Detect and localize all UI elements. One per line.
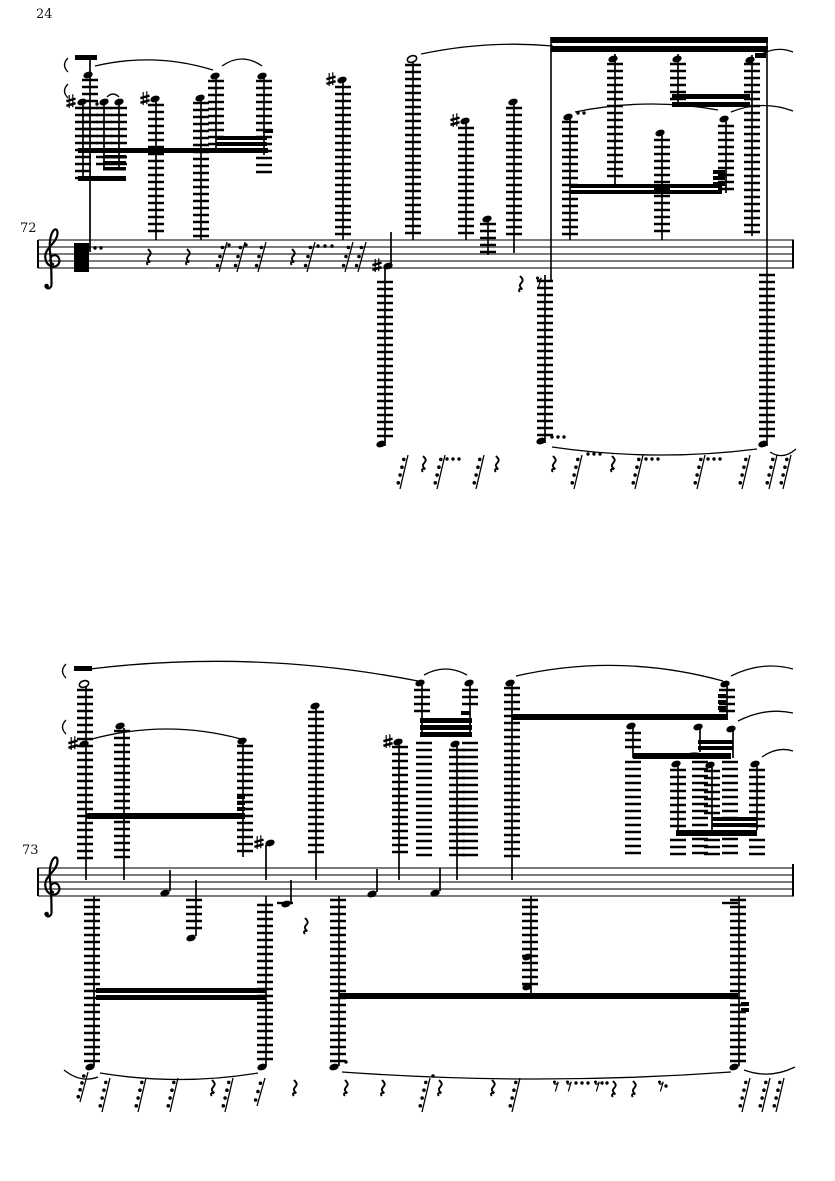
beam: [420, 732, 472, 737]
ledger-column: [186, 900, 202, 928]
beam: [570, 184, 722, 188]
notehead: [718, 114, 729, 123]
breath-arc: [65, 58, 69, 72]
augmentation-dot: [550, 435, 553, 438]
augmentation-dot: [598, 452, 601, 455]
ledger-column: [257, 905, 273, 1059]
notehead: [149, 94, 160, 103]
notehead: [328, 1062, 339, 1071]
augmentation-dot: [586, 1081, 589, 1084]
notehead: [185, 933, 196, 942]
eighth-rest: [553, 1081, 558, 1092]
beam: [96, 995, 266, 1000]
notehead: [481, 214, 492, 223]
augmentation-dot: [644, 457, 647, 460]
notehead: [256, 71, 267, 80]
ledger-column: [522, 900, 538, 984]
slur: [762, 749, 793, 757]
notehead: [671, 54, 682, 63]
notehead: [98, 97, 109, 106]
notehead: [749, 759, 760, 768]
notehead: [336, 75, 347, 84]
slur: [770, 449, 796, 456]
slur: [95, 60, 213, 70]
multi-flag-rest: [472, 455, 484, 489]
slur: [731, 666, 793, 676]
score-page: 24 72 73: [0, 0, 835, 1181]
multi-flag-rest: [508, 1078, 520, 1112]
augmentation-dot: [576, 111, 579, 114]
beam: [461, 711, 470, 715]
augmentation-dot: [580, 1081, 583, 1084]
multi-flag-rest: [738, 1078, 750, 1112]
notehead: [459, 116, 470, 125]
quarter-rest: [147, 249, 151, 265]
slur: [64, 1070, 98, 1079]
measure-number-72: 72: [20, 222, 37, 235]
augmentation-dot: [344, 1060, 347, 1063]
breath-arc: [63, 664, 67, 678]
beam: [551, 37, 768, 43]
slur: [342, 1072, 731, 1079]
beam: [713, 176, 725, 180]
quarter-rest: [186, 249, 190, 265]
sharp-accidental: [66, 94, 75, 108]
multi-flag-rest: [765, 455, 777, 489]
slur: [744, 1067, 795, 1074]
slur: [424, 669, 467, 675]
notehead-open: [78, 679, 89, 688]
notehead: [280, 899, 291, 908]
page-number: 24: [36, 8, 53, 21]
beam: [86, 813, 245, 819]
notehead: [113, 97, 124, 106]
treble-clef-icon: [44, 229, 59, 288]
sharp-accidental: [326, 72, 335, 86]
beam: [420, 725, 472, 730]
notehead: [654, 128, 665, 137]
notehead: [625, 721, 636, 730]
notehead: [692, 722, 703, 731]
slur: [100, 1073, 258, 1080]
quarter-rest: [422, 456, 426, 472]
multi-flag-rest: [758, 1078, 770, 1112]
augmentation-dot: [592, 452, 595, 455]
ledger-column: [416, 743, 432, 855]
beam: [78, 176, 126, 181]
multi-flag-rest: [221, 1078, 233, 1112]
notehead: [507, 97, 518, 106]
augmentation-dot: [330, 244, 333, 247]
multi-flag-rest: [433, 455, 445, 489]
beam: [755, 53, 766, 58]
slur: [107, 94, 119, 97]
beam: [216, 136, 267, 140]
augmentation-dot: [99, 246, 102, 249]
sharp-accidental: [140, 91, 149, 105]
quarter-rest: [211, 1080, 215, 1096]
beam: [672, 102, 750, 107]
beam: [698, 740, 733, 744]
sharp-accidental: [254, 835, 263, 849]
notehead: [414, 678, 425, 687]
augmentation-dot: [664, 1084, 667, 1087]
ledger-column: [84, 900, 100, 1061]
notehead: [504, 678, 515, 687]
ledger-column: [625, 762, 641, 853]
slur: [222, 59, 262, 66]
ledger-column: [77, 690, 93, 858]
augmentation-dot: [244, 243, 247, 246]
beam: [718, 700, 726, 704]
multi-flag-rest: [254, 1078, 265, 1106]
ledger-column: [114, 731, 130, 857]
beam: [741, 1008, 749, 1012]
quarter-rest: [519, 276, 523, 292]
quarter-rest: [304, 918, 308, 934]
score-canvas: [0, 0, 835, 1181]
augmentation-dot: [706, 457, 709, 460]
slur: [738, 711, 793, 721]
multi-flag-rest: [570, 455, 582, 489]
augmentation-dot: [316, 244, 319, 247]
beam: [718, 694, 726, 698]
beam: [676, 830, 757, 836]
beam: [551, 46, 768, 52]
augmentation-dot: [582, 111, 585, 114]
ledger-column: [730, 900, 746, 1061]
quarter-rest: [495, 456, 499, 472]
ledger-column: [692, 755, 708, 853]
eighth-rest: [658, 1081, 663, 1092]
beam: [712, 823, 757, 827]
slur: [421, 44, 553, 54]
augmentation-dot: [600, 1081, 603, 1084]
augmentation-dot: [93, 246, 96, 249]
quarter-rest: [632, 1081, 636, 1097]
multi-flag-rest: [772, 1078, 784, 1112]
eighth-rest: [566, 1081, 571, 1092]
multi-flag-rest: [779, 455, 791, 489]
augmentation-dot: [556, 435, 559, 438]
quarter-rest: [438, 1080, 442, 1096]
slur: [552, 447, 757, 455]
multi-flag-rest: [418, 1078, 430, 1112]
augmentation-dot: [656, 457, 659, 460]
ledger-column: [722, 762, 738, 853]
beam: [713, 170, 725, 174]
notehead: [562, 112, 573, 121]
beam: [718, 706, 726, 710]
multi-flag-rest: [631, 455, 643, 489]
quarter-rest: [293, 1080, 297, 1096]
beam: [74, 666, 92, 671]
measure-number-73: 73: [22, 844, 39, 857]
notehead: [607, 54, 618, 63]
beam: [103, 155, 126, 159]
quarter-rest: [291, 249, 295, 265]
system-m72: [38, 37, 796, 489]
augmentation-dot: [457, 457, 460, 460]
augmentation-dot: [605, 1081, 608, 1084]
notehead: [670, 759, 681, 768]
multi-flag-rest: [76, 1072, 88, 1102]
notehead: [82, 70, 93, 79]
beam: [698, 746, 733, 750]
quarter-rest: [612, 1081, 616, 1097]
notehead: [728, 1062, 739, 1071]
multi-flag-rest: [693, 455, 705, 489]
quarter-rest: [344, 1080, 348, 1096]
treble-clef-icon: [44, 857, 59, 916]
notehead-open: [406, 54, 417, 63]
beam: [741, 1002, 749, 1006]
augmentation-dot: [95, 102, 98, 105]
multi-flag-rest: [738, 455, 750, 489]
eighth-rest: [594, 1081, 599, 1092]
sharp-accidental: [68, 736, 77, 750]
beam: [712, 817, 757, 821]
augmentation-dot: [445, 457, 448, 460]
ledger-column: [670, 840, 686, 854]
multi-flag-rest: [98, 1078, 110, 1112]
augmentation-dot: [562, 435, 565, 438]
augmentation-dot: [451, 457, 454, 460]
notehead: [382, 261, 393, 270]
quarter-rest: [611, 456, 615, 472]
sharp-accidental: [383, 734, 392, 748]
beam: [96, 988, 266, 993]
slur: [516, 665, 723, 681]
ledger-column: [392, 747, 408, 852]
quarter-rest: [491, 1080, 495, 1096]
beam: [339, 993, 738, 999]
augmentation-dot: [323, 244, 326, 247]
breath-arc: [63, 720, 67, 734]
augmentation-dot: [574, 1081, 577, 1084]
augmentation-dot: [431, 1074, 434, 1077]
beam: [103, 161, 126, 165]
beam: [570, 190, 722, 194]
ledger-column: [749, 840, 765, 854]
augmentation-dot: [718, 457, 721, 460]
multi-flag-rest: [396, 455, 408, 489]
slur: [90, 661, 418, 681]
augmentation-dot: [650, 457, 653, 460]
notehead: [209, 71, 220, 80]
ledger-column: [330, 900, 346, 1061]
notehead: [463, 678, 474, 687]
augmentation-dot: [712, 457, 715, 460]
beam: [75, 55, 97, 60]
notehead: [366, 889, 377, 898]
notehead: [725, 724, 736, 733]
multi-flag-rest: [166, 1078, 178, 1112]
breath-arc: [65, 84, 69, 98]
beam: [78, 148, 268, 153]
quarter-rest: [552, 456, 556, 472]
notehead: [392, 737, 403, 746]
beam: [672, 94, 750, 99]
system-m73: [38, 661, 795, 1112]
augmentation-dot: [227, 243, 230, 246]
quarter-rest: [381, 1080, 385, 1096]
beam: [512, 714, 728, 720]
notehead: [76, 97, 87, 106]
cluster-chord: [74, 243, 89, 272]
notehead: [449, 739, 460, 748]
sharp-accidental: [450, 113, 459, 127]
beam: [420, 718, 472, 723]
beam: [216, 142, 267, 146]
notehead: [309, 701, 320, 710]
augmentation-dot: [586, 452, 589, 455]
notehead: [194, 93, 205, 102]
beam: [103, 167, 126, 171]
multi-flag-rest: [134, 1078, 146, 1112]
